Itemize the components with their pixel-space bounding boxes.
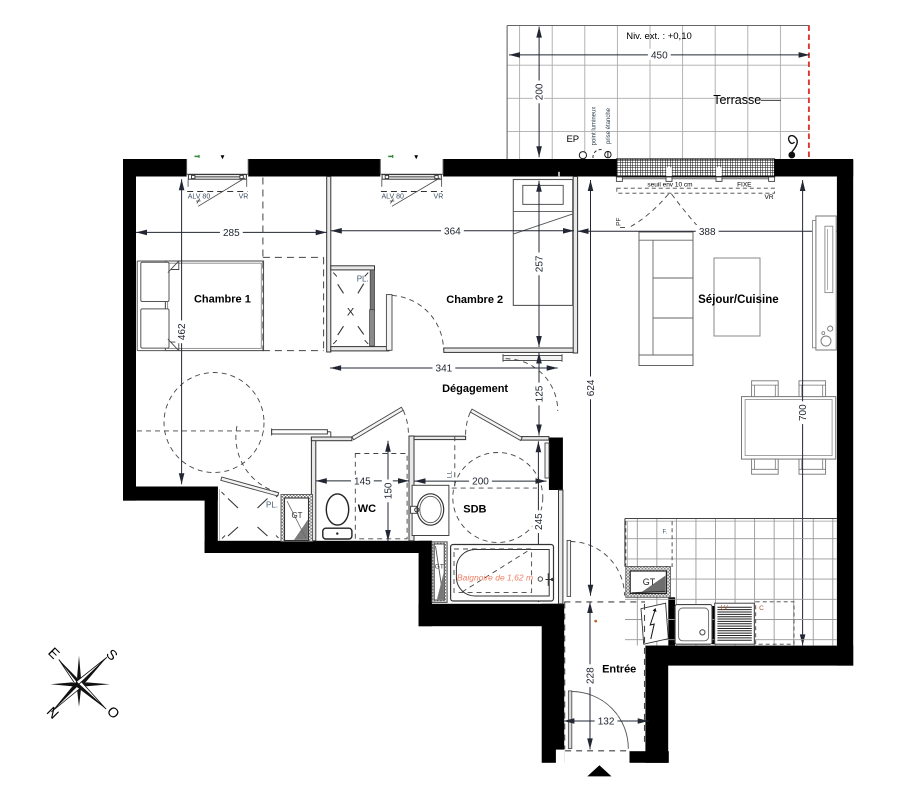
svg-text:GT: GT [435, 564, 444, 571]
svg-text:341: 341 [436, 364, 453, 375]
svg-text:450: 450 [651, 51, 668, 62]
svg-text:PL.: PL. [357, 275, 369, 284]
svg-text:PL.: PL. [266, 501, 278, 510]
svg-text:228: 228 [586, 667, 597, 684]
svg-text:point lumineux: point lumineux [592, 107, 598, 146]
svg-text:257: 257 [535, 255, 546, 272]
svg-text:364: 364 [444, 226, 461, 237]
svg-text:Chambre 1: Chambre 1 [194, 294, 251, 306]
svg-text:GT: GT [643, 577, 656, 587]
svg-text:GT: GT [291, 511, 302, 520]
svg-text:seuil env 10 cm: seuil env 10 cm [647, 182, 692, 189]
svg-text:200: 200 [472, 477, 489, 488]
svg-text:X: X [347, 307, 355, 319]
svg-text:Baignoire de 1,62 m: Baignoire de 1,62 m [457, 573, 533, 583]
svg-text:VR: VR [434, 194, 444, 201]
svg-text:WC: WC [358, 503, 376, 515]
svg-text:125: 125 [535, 385, 546, 402]
svg-text:VR: VR [764, 194, 773, 201]
svg-text:Séjour/Cuisine: Séjour/Cuisine [698, 294, 779, 306]
svg-text:FIXE: FIXE [737, 182, 752, 189]
svg-text:VR: VR [239, 194, 249, 201]
svg-text:388: 388 [699, 227, 716, 238]
svg-text:462: 462 [177, 323, 188, 340]
svg-text:Entrée: Entrée [602, 664, 636, 676]
svg-text:Dégagement: Dégagement [442, 383, 508, 395]
svg-text:245: 245 [534, 513, 545, 530]
svg-text:Chambre 2: Chambre 2 [446, 294, 503, 306]
svg-text:F.: F. [662, 530, 667, 536]
svg-text:LL: LL [447, 471, 454, 479]
svg-text:EP: EP [566, 134, 579, 145]
svg-text:ALV 80: ALV 80 [188, 194, 211, 201]
svg-text:Niv. ext. : +0,10: Niv. ext. : +0,10 [626, 31, 692, 42]
svg-text:700: 700 [798, 404, 809, 421]
svg-text:145: 145 [354, 477, 371, 488]
svg-text:prise étanche: prise étanche [606, 107, 612, 144]
svg-text:200: 200 [535, 83, 546, 100]
svg-text:ALV 80: ALV 80 [381, 194, 404, 201]
svg-text:C: C [759, 605, 764, 612]
svg-text:132: 132 [598, 717, 615, 728]
svg-text:PF: PF [615, 218, 622, 226]
svg-text:LV: LV [721, 606, 728, 612]
svg-text:150: 150 [384, 482, 395, 499]
svg-text:Terrasse: Terrasse [713, 93, 761, 107]
svg-text:624: 624 [586, 379, 597, 396]
svg-text:285: 285 [223, 228, 240, 239]
svg-text:SDB: SDB [463, 503, 486, 515]
